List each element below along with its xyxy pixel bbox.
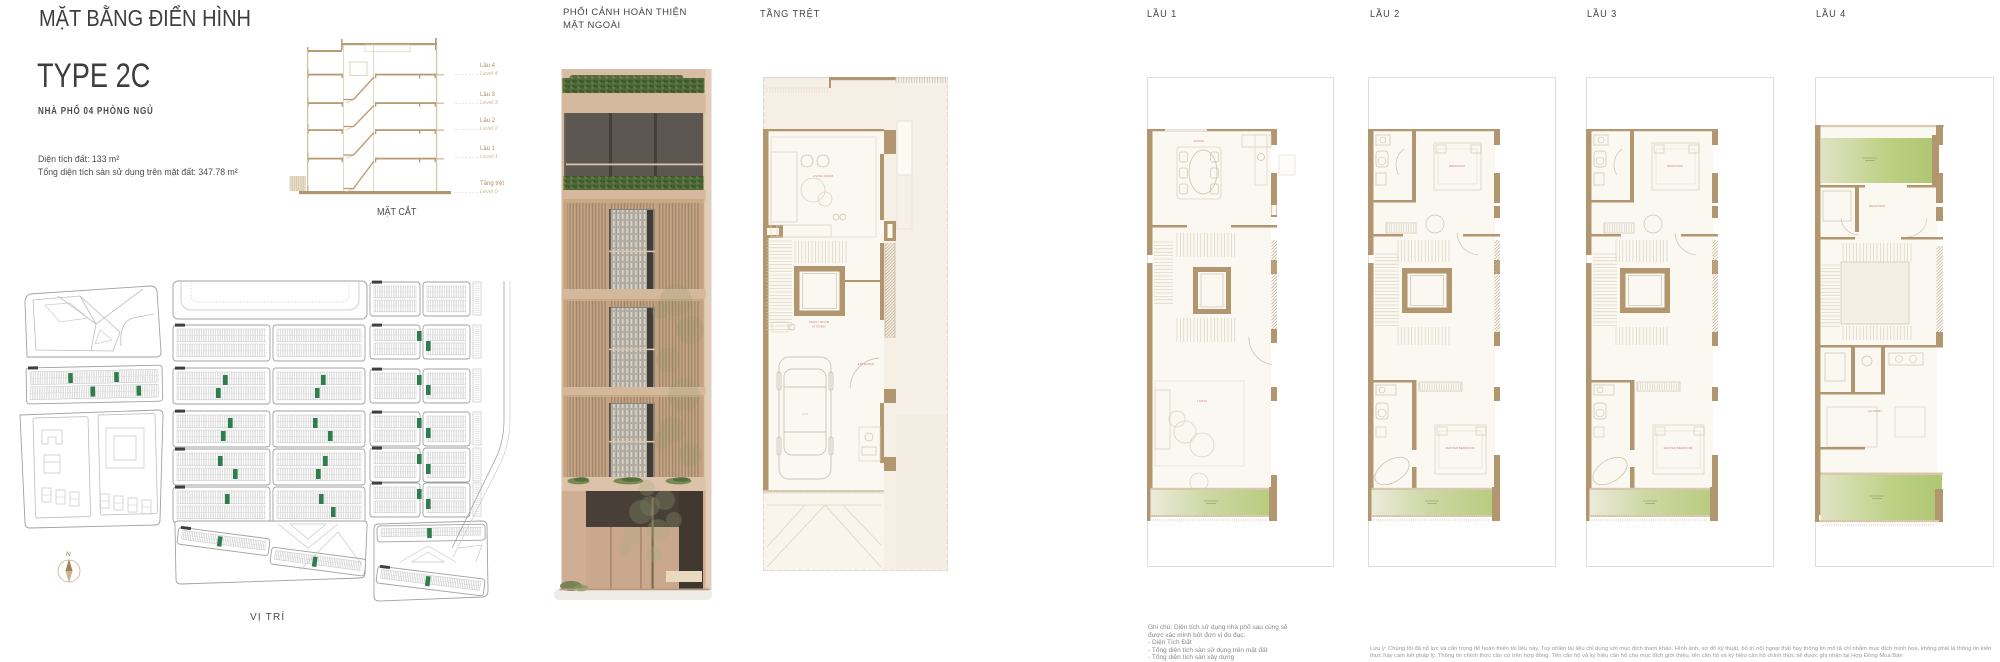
svg-text:Level 2: Level 2 [480, 126, 498, 132]
svg-text:ENTRANCE: ENTRANCE [858, 362, 875, 366]
svg-text:N: N [66, 551, 71, 558]
svg-text:Level 4: Level 4 [480, 71, 498, 77]
svg-text:Tầng trệt: Tầng trệt [480, 181, 504, 187]
svg-text:KITCHEN: KITCHEN [812, 325, 825, 329]
svg-text:FAMILY ROOM: FAMILY ROOM [809, 320, 830, 324]
svg-text:LAUNDRY: LAUNDRY [1868, 409, 1882, 413]
svg-text:Lầu 2: Lầu 2 [480, 118, 496, 124]
svg-text:Lầu 4: Lầu 4 [480, 63, 496, 69]
svg-text:LIVING: LIVING [1197, 399, 1208, 403]
svg-text:LIVING ROOM: LIVING ROOM [813, 174, 834, 178]
svg-text:MASTER BEDROOM: MASTER BEDROOM [1446, 446, 1475, 450]
svg-text:Level 1: Level 1 [480, 154, 498, 160]
svg-text:DINING: DINING [1194, 139, 1205, 143]
svg-text:MASTER BEDROOM: MASTER BEDROOM [1664, 446, 1693, 450]
svg-text:CAR: CAR [802, 412, 809, 416]
svg-text:BEDROOM: BEDROOM [1667, 164, 1683, 168]
svg-text:BEDROOM: BEDROOM [1449, 164, 1465, 168]
svg-text:BEDROOM: BEDROOM [1869, 204, 1885, 208]
svg-text:Lầu 3: Lầu 3 [480, 92, 496, 98]
svg-text:Level 0: Level 0 [480, 189, 499, 195]
svg-text:Lầu 1: Lầu 1 [480, 146, 496, 152]
svg-text:Level 3: Level 3 [480, 100, 499, 106]
